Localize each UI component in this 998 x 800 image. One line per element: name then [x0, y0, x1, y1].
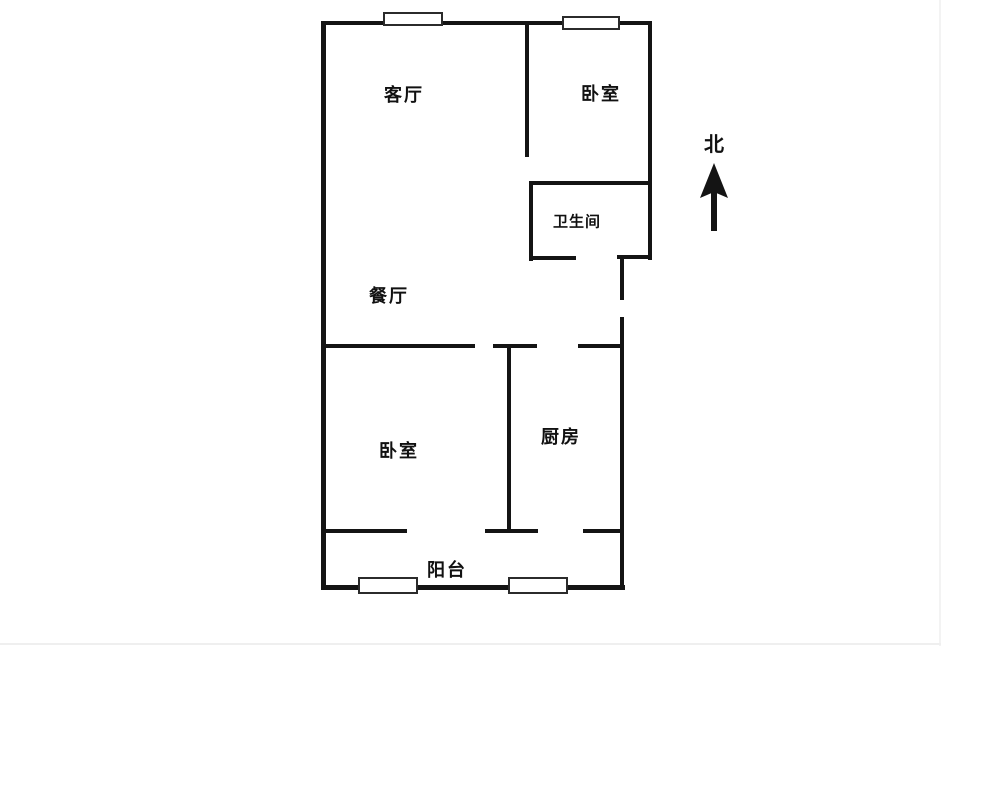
room-label-dining-room: 餐厅: [369, 282, 409, 308]
wall-kitchen-bedroom-divider: [507, 344, 511, 533]
room-label-bedroom-bottom: 卧室: [379, 437, 419, 463]
north-arrow-icon: [695, 161, 733, 233]
window-balcony-right: [508, 577, 568, 594]
wall-bathroom-bottom-left: [529, 256, 576, 260]
room-label-kitchen: 厨房: [541, 423, 581, 449]
wall-middle-segment-3: [578, 344, 624, 348]
wall-balcony-segment-3: [583, 529, 624, 533]
wall-exterior-right-lower: [620, 317, 624, 588]
wall-exterior-left: [321, 21, 326, 590]
photo-edge-horizontal: [0, 643, 941, 645]
floorplan-canvas: 客厅 卧室 卫生间 餐厅 卧室 厨房 阳台 北: [0, 0, 998, 800]
wall-exterior-right-upper: [648, 21, 652, 260]
wall-bathroom-top: [529, 181, 652, 185]
wall-balcony-segment-1: [321, 529, 407, 533]
window-bedroom-top: [562, 16, 620, 30]
room-label-living-room: 客厅: [384, 81, 424, 107]
window-balcony-left: [358, 577, 418, 594]
north-label: 北: [704, 128, 724, 157]
wall-exterior-right-mid: [620, 255, 624, 300]
room-label-bedroom-top: 卧室: [581, 80, 621, 106]
wall-middle-segment-1: [321, 344, 475, 348]
room-label-bathroom: 卫生间: [553, 211, 601, 232]
wall-middle-segment-2: [493, 344, 537, 348]
room-label-balcony: 阳台: [427, 556, 467, 582]
photo-edge-vertical: [939, 0, 941, 646]
wall-balcony-segment-2: [485, 529, 538, 533]
window-living-room: [383, 12, 443, 26]
compass: 北: [690, 128, 738, 233]
wall-living-bedroom-divider: [525, 21, 529, 157]
wall-bathroom-left: [529, 181, 533, 261]
